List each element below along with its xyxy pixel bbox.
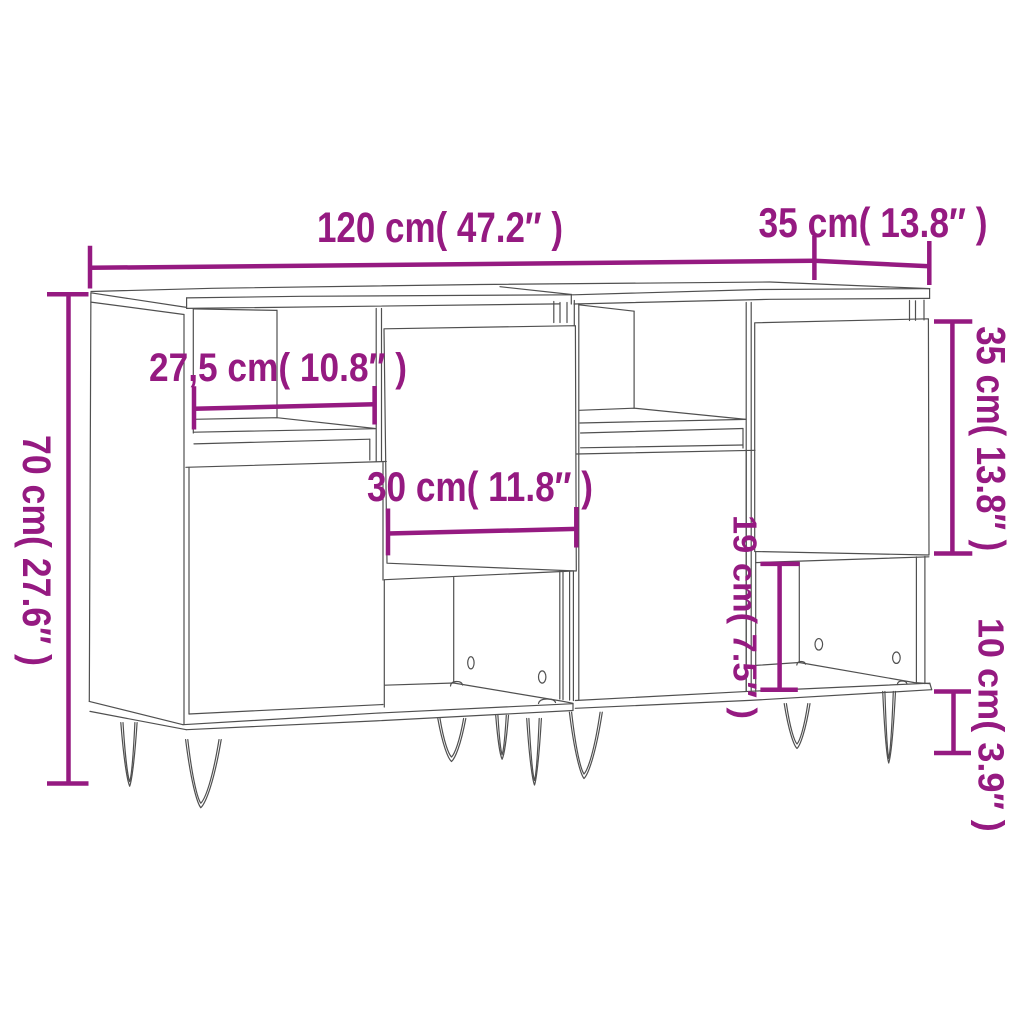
svg-text:35 cm( 13.8″ ): 35 cm( 13.8″ ) [759, 199, 988, 246]
svg-text:27,5 cm( 10.8″ ): 27,5 cm( 10.8″ ) [149, 346, 407, 390]
svg-text:30 cm( 11.8″ ): 30 cm( 11.8″ ) [367, 463, 593, 510]
svg-text:19 cm( 7.5″ ): 19 cm( 7.5″ ) [727, 515, 764, 719]
svg-text:70 cm( 27.6″ ): 70 cm( 27.6″ ) [14, 435, 58, 666]
svg-text:35 cm( 13.8″ ): 35 cm( 13.8″ ) [968, 326, 1014, 551]
svg-text:120 cm( 47.2″ ): 120 cm( 47.2″ ) [317, 204, 563, 252]
svg-text:10 cm( 3.9″ ): 10 cm( 3.9″ ) [971, 618, 1012, 832]
